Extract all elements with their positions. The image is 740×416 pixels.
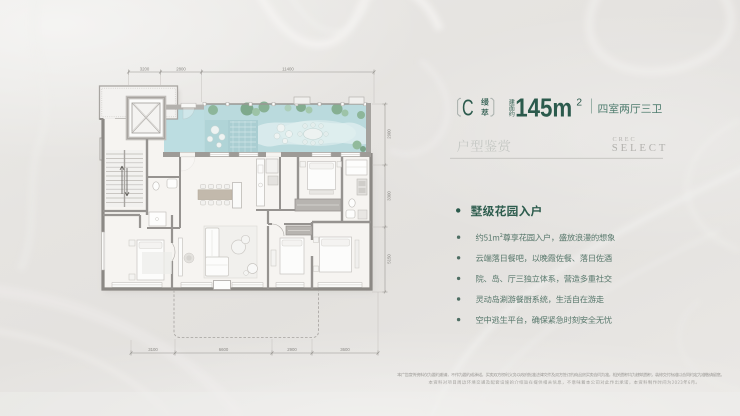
svg-text:SELECT: SELECT	[612, 142, 668, 154]
svg-text:2: 2	[576, 98, 582, 109]
svg-text:C: C	[462, 94, 474, 120]
svg-text:145m: 145m	[515, 94, 572, 122]
